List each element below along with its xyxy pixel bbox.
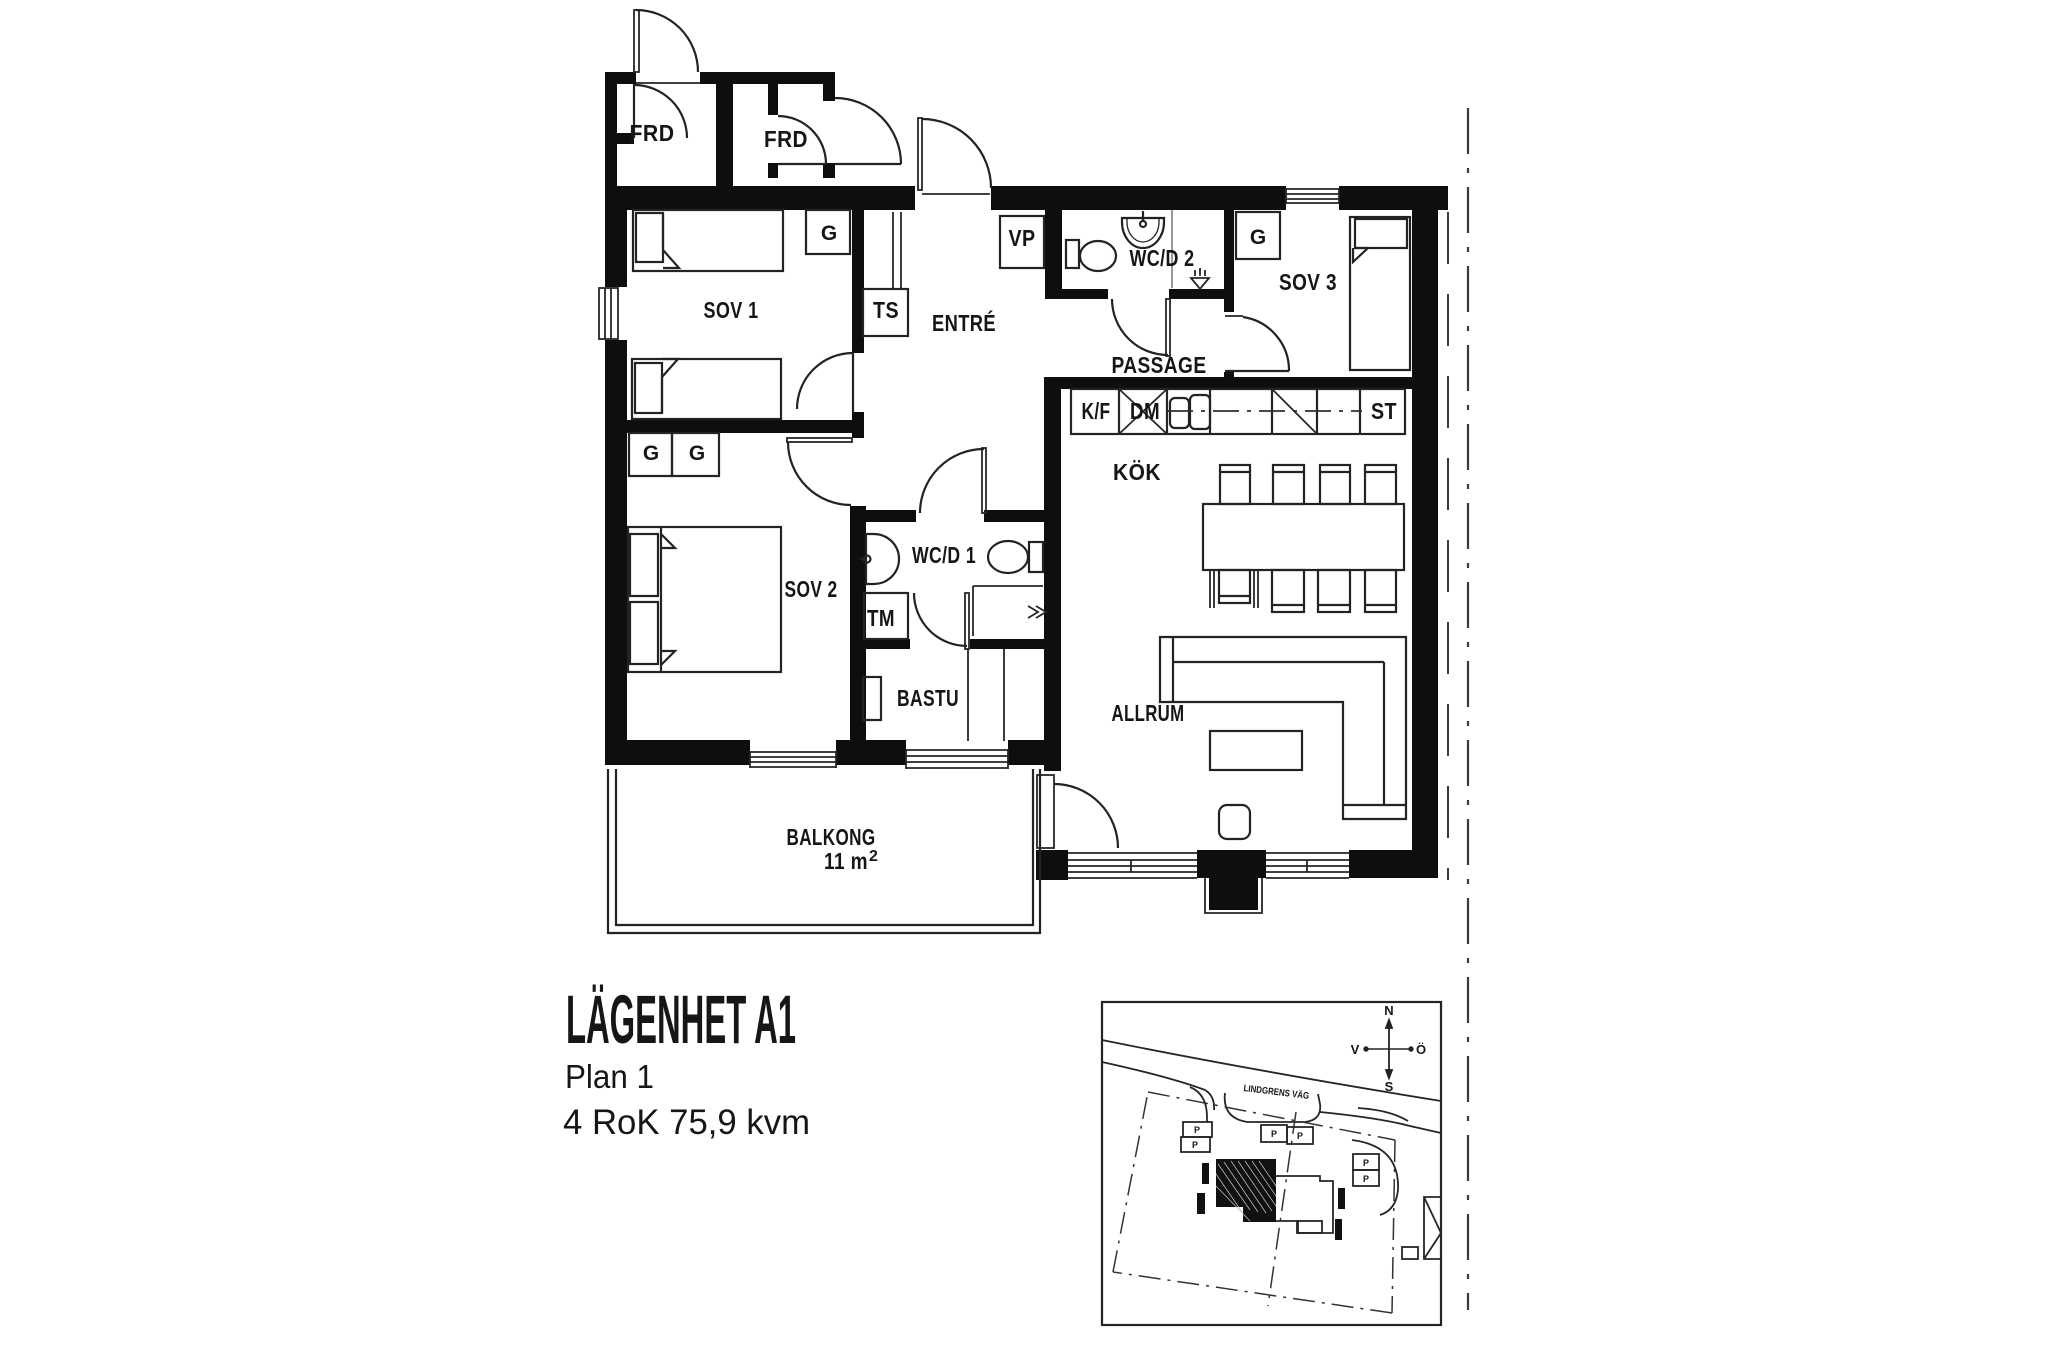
svg-text:P: P xyxy=(1297,1131,1303,1141)
svg-text:WC/D 1: WC/D 1 xyxy=(912,542,976,568)
svg-text:WC/D 2: WC/D 2 xyxy=(1130,245,1195,271)
svg-text:PASSAGE: PASSAGE xyxy=(1112,352,1207,378)
svg-text:P: P xyxy=(1192,1140,1198,1150)
svg-text:FRD: FRD xyxy=(630,120,675,146)
svg-text:SOV 3: SOV 3 xyxy=(1279,269,1337,295)
svg-text:KÖK: KÖK xyxy=(1113,459,1161,485)
svg-text:ST: ST xyxy=(1371,398,1397,424)
svg-text:P: P xyxy=(1194,1125,1200,1135)
svg-text:P: P xyxy=(1271,1129,1277,1139)
svg-text:Ö: Ö xyxy=(1416,1042,1426,1057)
svg-text:P: P xyxy=(1363,1158,1369,1168)
svg-text:TS: TS xyxy=(873,297,899,323)
svg-text:DM: DM xyxy=(1130,398,1160,424)
svg-text:2: 2 xyxy=(869,848,878,865)
svg-text:SOV 1: SOV 1 xyxy=(704,297,759,323)
svg-text:LÄGENHET A1: LÄGENHET A1 xyxy=(566,981,796,1058)
svg-text:ENTRÉ: ENTRÉ xyxy=(932,309,996,336)
svg-text:G: G xyxy=(821,222,837,245)
svg-text:4 RoK 75,9 kvm: 4 RoK 75,9 kvm xyxy=(563,1103,810,1142)
svg-text:G: G xyxy=(1250,226,1266,249)
svg-text:N: N xyxy=(1384,1003,1393,1018)
svg-text:V: V xyxy=(1351,1042,1360,1057)
svg-text:FRD: FRD xyxy=(764,126,808,152)
svg-text:BASTU: BASTU xyxy=(897,685,959,711)
svg-text:ALLRUM: ALLRUM xyxy=(1112,700,1185,726)
svg-text:G: G xyxy=(643,442,659,465)
svg-text:BALKONG: BALKONG xyxy=(787,824,876,850)
svg-text:SOV 2: SOV 2 xyxy=(785,576,838,602)
svg-text:K/F: K/F xyxy=(1082,398,1111,424)
svg-text:P: P xyxy=(1363,1174,1369,1184)
svg-text:G: G xyxy=(689,442,705,465)
svg-text:11 m: 11 m xyxy=(824,848,868,874)
svg-text:TM: TM xyxy=(867,605,895,631)
svg-text:Plan 1: Plan 1 xyxy=(565,1058,654,1095)
svg-text:VP: VP xyxy=(1009,225,1036,251)
